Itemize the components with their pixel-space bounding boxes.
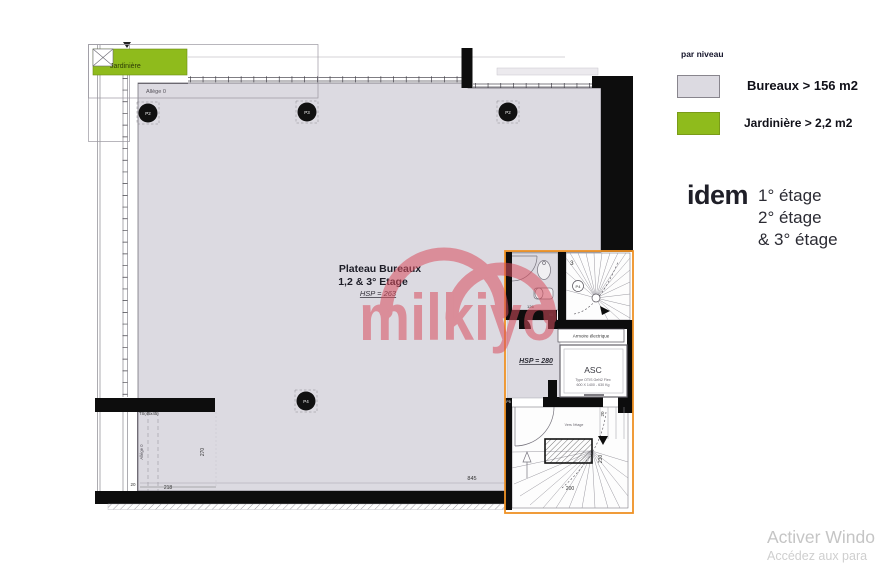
hsp280-label: HSP = 280 bbox=[519, 358, 553, 365]
foundation-hatch bbox=[108, 504, 510, 510]
column-p5-label: P5 bbox=[506, 400, 510, 404]
legend-swatch-bureaux bbox=[677, 75, 720, 98]
legend-swatch-jardiniere bbox=[677, 112, 720, 135]
stair-dim-small: 20 bbox=[600, 411, 605, 417]
windows-activation-title: Activer Windo bbox=[767, 527, 875, 548]
allege-left-label: Allège 0 bbox=[139, 444, 144, 460]
windows-activation-subtitle: Accédez aux para bbox=[767, 549, 867, 563]
dim-218: 218 bbox=[164, 485, 173, 491]
level-line-2: 2° étage bbox=[758, 207, 838, 229]
allege-top-label: Allège 0 bbox=[146, 89, 166, 95]
legend-label-jardiniere: Jardinière > 2,2 m2 bbox=[744, 116, 852, 130]
watermark-text: milkiyo bbox=[359, 280, 557, 354]
column-label: P4 bbox=[303, 399, 309, 404]
column-label: P3 bbox=[304, 110, 310, 115]
upper-stair-newel bbox=[592, 294, 600, 302]
legend-title: par niveau bbox=[681, 49, 724, 59]
column-label: P2 bbox=[505, 110, 511, 115]
asc-spec1: Type OTIS GeN2 Flex bbox=[575, 378, 611, 382]
idem-keyword: idem bbox=[687, 180, 748, 211]
asc-label: ASC bbox=[584, 365, 601, 375]
dim-845: 845 bbox=[467, 476, 476, 482]
asc-spec2: 600 X 1400 - 630 Kg bbox=[577, 383, 610, 387]
facade-outline-lines bbox=[188, 57, 598, 75]
legend-label-bureaux: Bureaux > 156 m2 bbox=[747, 78, 858, 93]
ts-label: TS(45x45) bbox=[139, 411, 159, 416]
column-p4-small-label: P4 bbox=[576, 284, 582, 289]
stair-dim-height: 230 bbox=[598, 455, 604, 464]
column-label: P2 bbox=[145, 111, 151, 116]
level-line-3: & 3° étage bbox=[758, 229, 838, 251]
stair-level-number: 3 bbox=[570, 260, 574, 267]
stair-dim-width: 200 bbox=[566, 486, 575, 492]
dim-270: 270 bbox=[200, 448, 206, 457]
level-line-1: 1° étage bbox=[758, 185, 838, 207]
elevator-shaft: ASC Type OTIS GeN2 Flex 600 X 1400 - 630… bbox=[560, 345, 627, 397]
left-facade-glazing bbox=[98, 45, 128, 491]
levels-list: 1° étage 2° étage & 3° étage bbox=[758, 185, 838, 251]
jardiniere-label: Jardinière bbox=[110, 63, 141, 70]
stair-note: Vers l'étage bbox=[565, 423, 584, 427]
armoire-label: Armoire électrique bbox=[573, 334, 610, 339]
stair-hatched-landing bbox=[545, 439, 592, 463]
dim-20: 20 bbox=[130, 482, 136, 487]
floor-plan-page: Jardinière Allège 0 bbox=[0, 0, 884, 569]
